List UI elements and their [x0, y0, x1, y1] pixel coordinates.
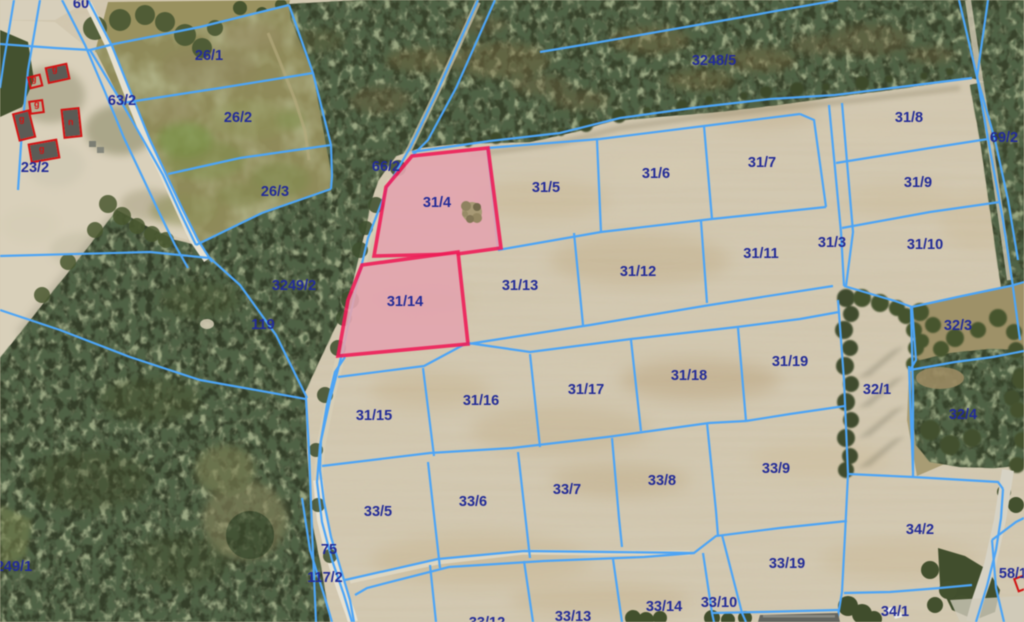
svg-text:32/4: 32/4 — [949, 407, 977, 423]
svg-text:3248/5: 3248/5 — [692, 53, 736, 69]
svg-text:g: g — [39, 144, 45, 154]
svg-text:33/19: 33/19 — [769, 556, 805, 572]
svg-text:31/4: 31/4 — [423, 195, 451, 211]
svg-text:32/3: 32/3 — [944, 318, 972, 334]
svg-text:31/5: 31/5 — [532, 180, 560, 196]
svg-text:31/8: 31/8 — [895, 110, 923, 126]
svg-text:g: g — [31, 74, 37, 84]
svg-text:31/18: 31/18 — [671, 368, 707, 384]
svg-text:n: n — [68, 117, 74, 127]
svg-text:63/2: 63/2 — [108, 93, 136, 109]
svg-text:g: g — [52, 64, 58, 74]
svg-text:66/2: 66/2 — [372, 159, 400, 175]
svg-text:33/5: 33/5 — [364, 504, 392, 520]
svg-text:31/10: 31/10 — [907, 237, 943, 253]
svg-text:33/13: 33/13 — [555, 609, 591, 622]
svg-text:31/6: 31/6 — [642, 166, 670, 182]
svg-text:33/10: 33/10 — [701, 595, 737, 611]
svg-text:31/14: 31/14 — [387, 294, 423, 310]
svg-text:249/1: 249/1 — [0, 559, 32, 575]
svg-text:34/2: 34/2 — [906, 522, 934, 538]
svg-text:31/16: 31/16 — [463, 393, 499, 409]
svg-text:117/2: 117/2 — [307, 570, 343, 586]
svg-text:31/19: 31/19 — [772, 354, 808, 370]
svg-text:75: 75 — [321, 542, 337, 558]
svg-text:33/8: 33/8 — [648, 473, 676, 489]
svg-text:31/15: 31/15 — [356, 408, 392, 424]
svg-text:31/3: 31/3 — [818, 235, 846, 251]
svg-text:31/9: 31/9 — [904, 175, 932, 191]
svg-text:26/3: 26/3 — [261, 184, 289, 200]
svg-text:26/1: 26/1 — [195, 48, 223, 64]
svg-text:69/2: 69/2 — [990, 130, 1018, 146]
svg-text:33/14: 33/14 — [646, 599, 682, 615]
svg-text:g: g — [34, 99, 40, 109]
svg-text:33/12: 33/12 — [469, 615, 505, 622]
svg-text:23/2: 23/2 — [21, 160, 49, 176]
svg-text:60: 60 — [73, 0, 89, 12]
svg-text:58/1: 58/1 — [999, 566, 1024, 582]
svg-text:33/9: 33/9 — [762, 461, 790, 477]
svg-text:3249/2: 3249/2 — [272, 278, 316, 294]
svg-text:g: g — [19, 114, 25, 124]
svg-text:31/12: 31/12 — [620, 264, 656, 280]
svg-text:34/1: 34/1 — [881, 604, 909, 620]
svg-text:26/2: 26/2 — [224, 110, 252, 126]
svg-text:31/13: 31/13 — [502, 278, 538, 294]
svg-text:32/1: 32/1 — [863, 382, 891, 398]
svg-text:119: 119 — [251, 317, 274, 333]
svg-text:31/7: 31/7 — [748, 155, 776, 171]
svg-text:31/17: 31/17 — [568, 382, 604, 398]
svg-text:33/7: 33/7 — [553, 482, 581, 498]
svg-text:31/11: 31/11 — [743, 246, 779, 262]
svg-text:33/6: 33/6 — [459, 494, 487, 510]
